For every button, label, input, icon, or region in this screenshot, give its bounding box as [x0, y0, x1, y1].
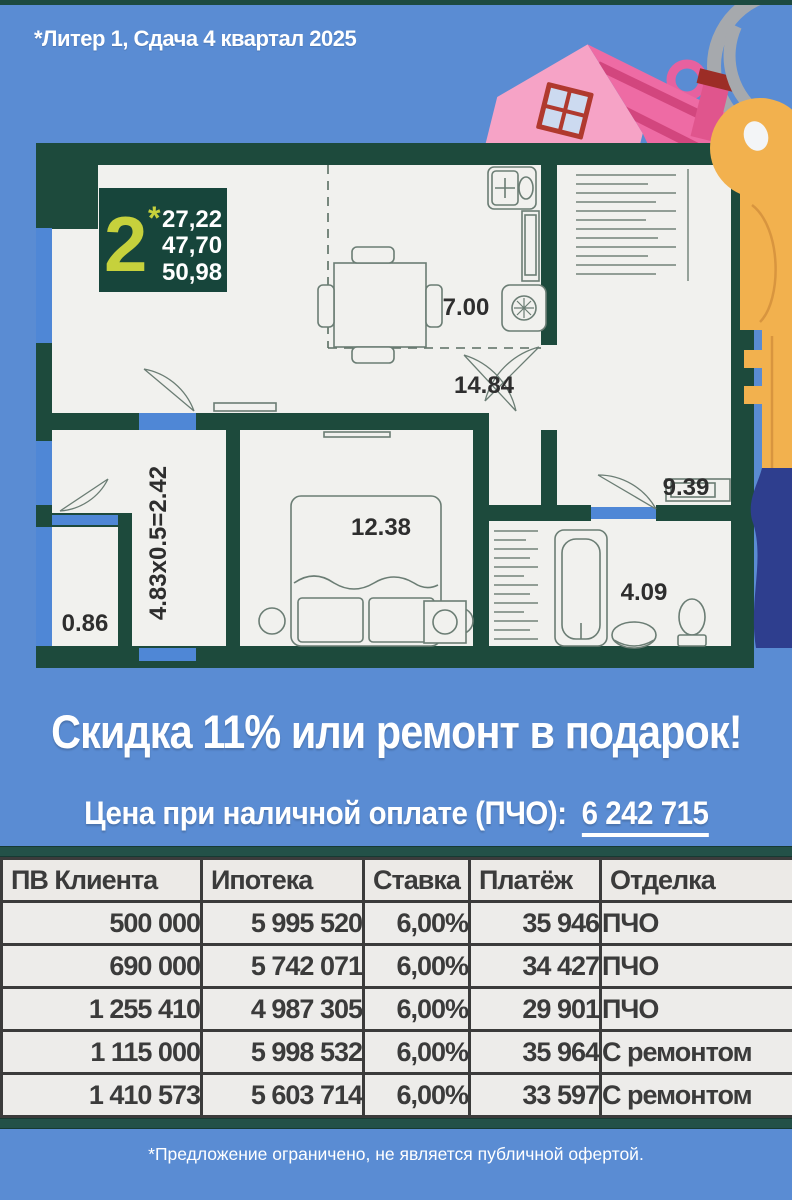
keyring-arc-icon — [730, 26, 762, 116]
kitchen-sink-icon — [488, 167, 536, 209]
plan-windows — [36, 228, 656, 661]
cell-mortgage: 5 603 714 — [202, 1074, 364, 1117]
price-label: Цена при наличной оплате (ПЧО): — [84, 795, 566, 831]
col-header-payment: Платёж — [470, 859, 601, 902]
key-icon — [710, 98, 792, 478]
disclaimer-text: *Предложение ограничено, не является пуб… — [0, 1144, 792, 1165]
table-row: 690 000 5 742 071 6,00% 34 427 ПЧО — [2, 945, 792, 988]
col-header-downpayment: ПВ Клиента — [2, 859, 202, 902]
kitchen-zone-dashed-line — [328, 165, 541, 348]
plan-walls — [36, 143, 754, 668]
table-row: 500 000 5 995 520 6,00% 35 946 ПЧО — [2, 902, 792, 945]
tv-console-icon — [214, 403, 276, 411]
cell-rate: 6,00% — [364, 988, 470, 1031]
cell-payment: 34 427 — [470, 945, 601, 988]
col-header-mortgage: Ипотека — [202, 859, 364, 902]
bed-icon — [291, 496, 441, 646]
house-window-icon — [536, 82, 594, 140]
plan-floor — [36, 143, 754, 668]
bathtub-icon — [555, 530, 607, 646]
sink-icon — [612, 622, 656, 648]
bathroom-area-label: 4.09 — [621, 579, 668, 606]
plan-doors — [60, 347, 656, 511]
cell-downpayment: 1 410 573 — [2, 1074, 202, 1117]
bench-icon — [666, 479, 730, 501]
cell-finish: ПЧО — [601, 945, 792, 988]
toilet-icon — [679, 599, 705, 635]
project-label: *Литер 1, Сдача 4 квартал 2025 — [34, 26, 356, 52]
cell-finish: ПЧО — [601, 988, 792, 1031]
cell-finish: С ремонтом — [601, 1074, 792, 1117]
cell-downpayment: 690 000 — [2, 945, 202, 988]
cell-mortgage: 5 995 520 — [202, 902, 364, 945]
bedroom-area-label: 12.38 — [351, 514, 411, 541]
cell-finish: С ремонтом — [601, 1031, 792, 1074]
pink-house-icon — [471, 22, 782, 235]
keyring-icon — [714, 0, 792, 140]
cell-rate: 6,00% — [364, 902, 470, 945]
closet-icon — [494, 531, 538, 639]
cell-payment: 29 901 — [470, 988, 601, 1031]
living-area-label: 14.84 — [454, 372, 515, 399]
table-row: 1 410 573 5 603 714 6,00% 33 597 С ремон… — [2, 1074, 792, 1117]
hall-area-label: 9.39 — [663, 474, 710, 501]
cell-mortgage: 4 987 305 — [202, 988, 364, 1031]
cell-mortgage: 5 742 071 — [202, 945, 364, 988]
plan-furniture — [214, 167, 730, 648]
cell-rate: 6,00% — [364, 1074, 470, 1117]
price-line: Цена при наличной оплате (ПЧО): 6 242 71… — [0, 795, 792, 832]
rooms-star: * — [148, 200, 161, 236]
dining-table-icon — [334, 263, 426, 347]
rooms-count: 2 — [104, 200, 147, 288]
col-header-finish: Отделка — [601, 859, 792, 902]
cell-payment: 35 946 — [470, 902, 601, 945]
badge-area-2: 47,70 — [162, 232, 222, 259]
table-top-band — [0, 846, 792, 857]
wardrobe-icon — [576, 169, 688, 281]
cell-payment: 33 597 — [470, 1074, 601, 1117]
real-estate-flyer: *Литер 1, Сдача 4 квартал 2025 — [0, 0, 792, 1200]
top-border — [0, 0, 792, 5]
cell-downpayment: 1 255 410 — [2, 988, 202, 1031]
table-bottom-band — [0, 1118, 792, 1129]
cabinet-icon — [522, 211, 539, 281]
table-row: 1 255 410 4 987 305 6,00% 29 901 ПЧО — [2, 988, 792, 1031]
cell-downpayment: 1 115 000 — [2, 1031, 202, 1074]
balcony-area-label: 0.86 — [62, 610, 109, 637]
badge-area-3: 50,98 — [162, 259, 222, 286]
keys-illustration — [640, 0, 792, 660]
kitchen-area-label: 7.00 — [443, 294, 490, 321]
cell-rate: 6,00% — [364, 1031, 470, 1074]
house-keys-illustration — [440, 0, 792, 235]
cell-downpayment: 500 000 — [2, 902, 202, 945]
cell-finish: ПЧО — [601, 902, 792, 945]
cell-payment: 35 964 — [470, 1031, 601, 1074]
apartment-badge: 2 * 27,22 47,70 50,98 — [99, 188, 227, 292]
stove-icon — [502, 285, 546, 331]
ceiling-lamp-icon — [324, 432, 390, 437]
badge-area-1: 27,22 — [162, 206, 222, 233]
table-row: 1 115 000 5 998 532 6,00% 35 964 С ремон… — [2, 1031, 792, 1074]
promo-headline: Скидка 11% или ремонт в подарок! — [0, 704, 792, 759]
offers-table-zone: ПВ Клиента Ипотека Ставка Платёж Отделка… — [0, 846, 792, 1129]
pink-ring-icon — [671, 64, 703, 96]
cell-mortgage: 5 998 532 — [202, 1031, 364, 1074]
washing-machine-icon — [424, 601, 466, 643]
nightstand-icon — [259, 608, 285, 634]
cell-rate: 6,00% — [364, 945, 470, 988]
offers-table: ПВ Клиента Ипотека Ставка Платёж Отделка… — [0, 857, 792, 1118]
price-value: 6 242 715 — [581, 795, 708, 837]
floor-plan: 2 * 27,22 47,70 50,98 7.00 14.84 12.38 9… — [36, 143, 756, 670]
table-header-row: ПВ Клиента Ипотека Ставка Платёж Отделка — [2, 859, 792, 902]
loggia-formula-label: 4.83x0.5=2.42 — [145, 466, 172, 620]
col-header-rate: Ставка — [364, 859, 470, 902]
key-shadow-shape — [751, 468, 792, 648]
nightstand-icon — [447, 608, 473, 634]
